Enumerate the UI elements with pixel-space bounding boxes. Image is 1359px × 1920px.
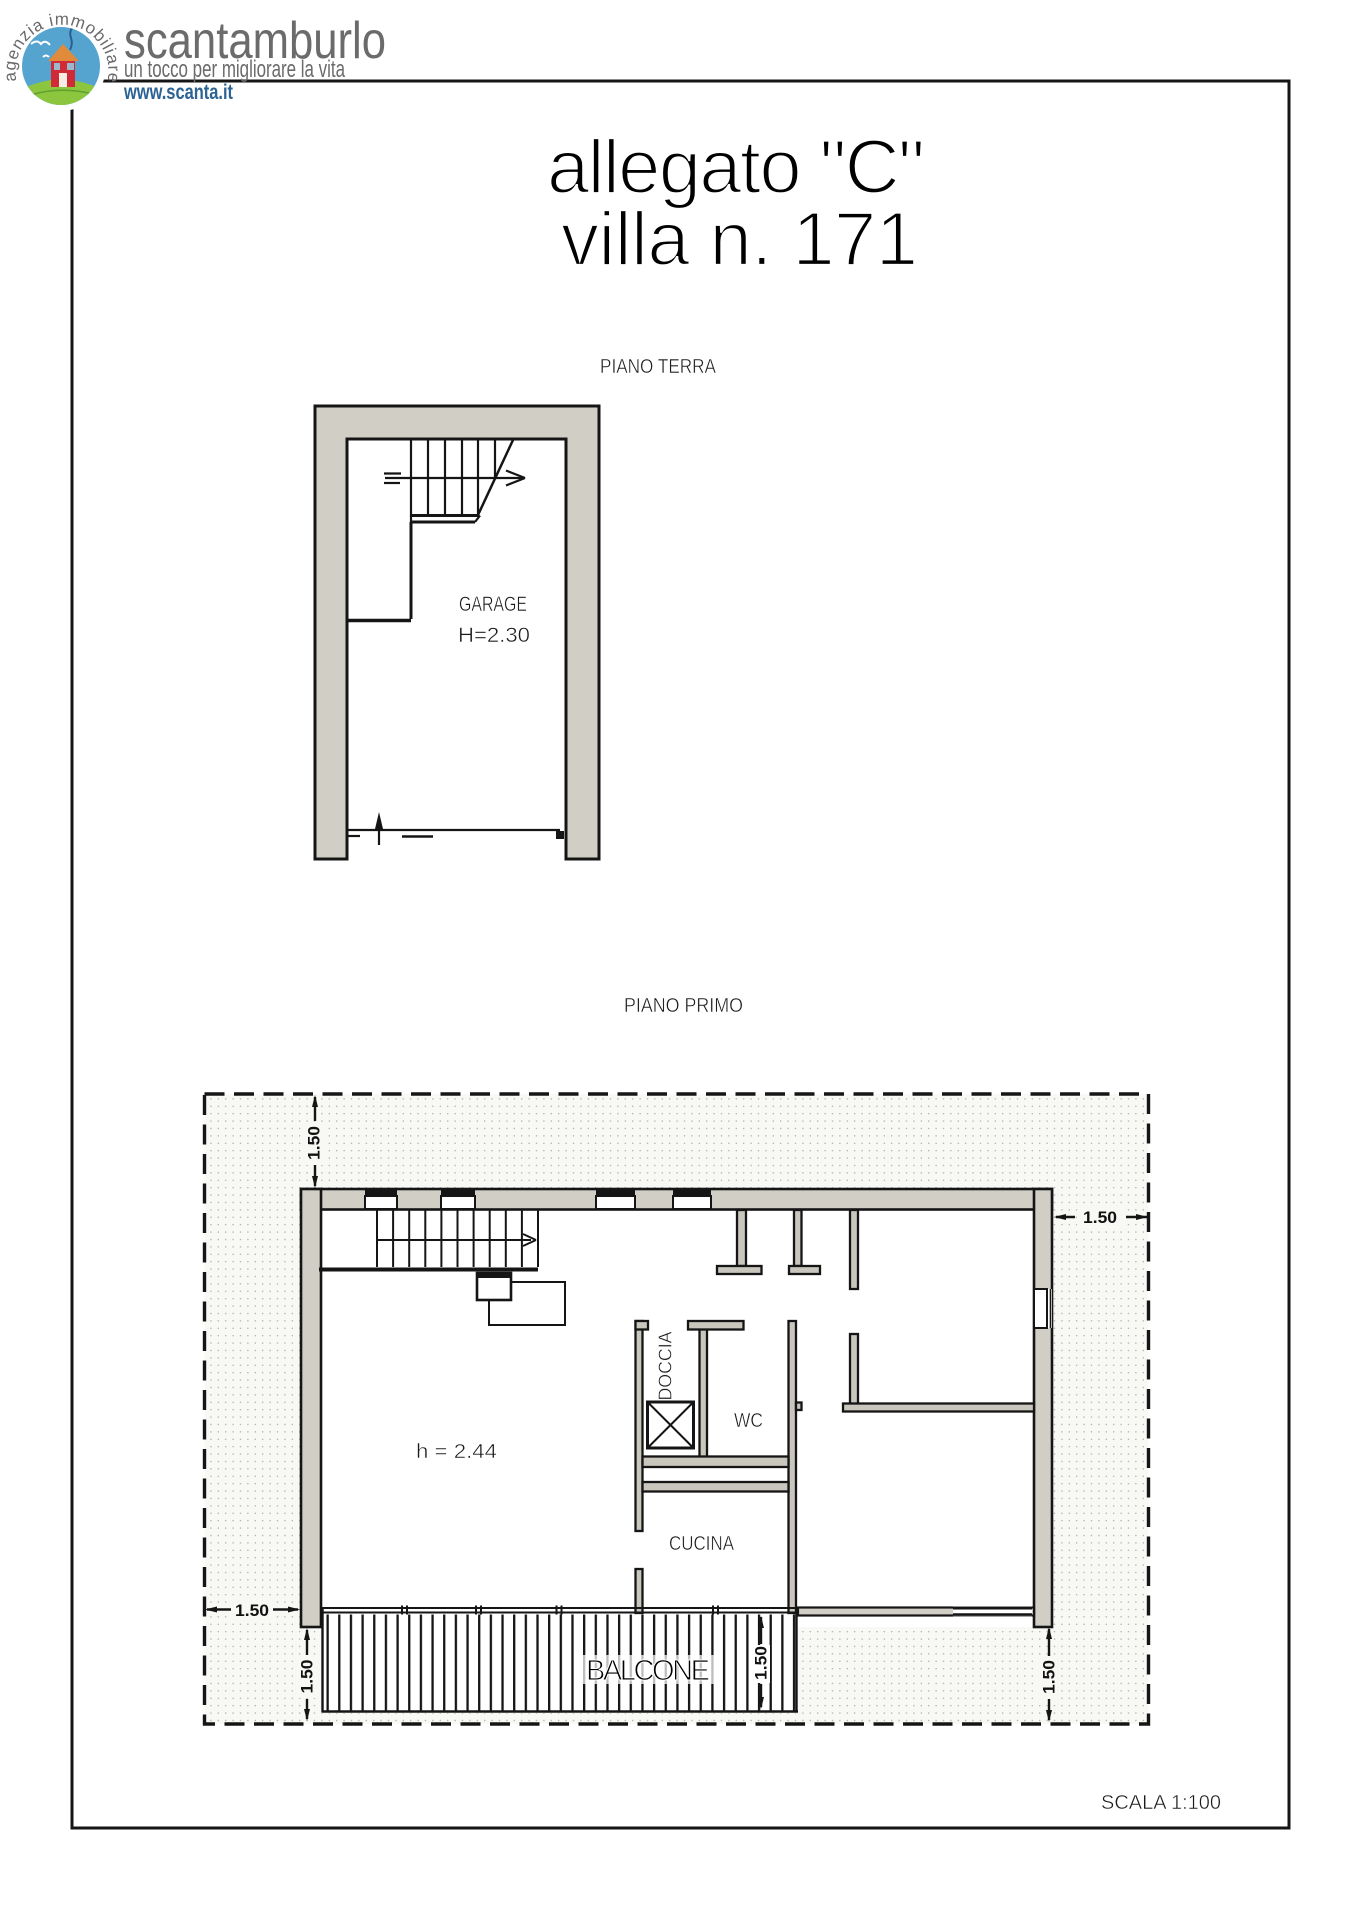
svg-text:1.50: 1.50 [752,1646,771,1680]
svg-text:PIANO PRIMO: PIANO PRIMO [624,995,743,1017]
svg-text:H=2.30: H=2.30 [458,624,530,647]
svg-text:1.50: 1.50 [1040,1660,1059,1694]
svg-text:WC: WC [734,1410,763,1432]
svg-text:BALCONE: BALCONE [586,1655,710,1687]
svg-text:h = 2.44: h = 2.44 [416,1441,497,1463]
svg-text:www.scanta.it: www.scanta.it [123,81,233,104]
svg-text:1.50: 1.50 [298,1660,317,1694]
svg-text:CUCINA: CUCINA [669,1533,735,1555]
svg-text:DOCCIA: DOCCIA [656,1332,676,1401]
svg-text:un tocco per migliorare la vit: un tocco per migliorare la vita [124,56,345,83]
svg-text:SCALA 1:100: SCALA 1:100 [1101,1792,1221,1814]
svg-text:PIANO TERRA: PIANO TERRA [600,356,717,378]
svg-text:villa n. 171: villa n. 171 [561,197,918,282]
svg-text:1.50: 1.50 [1083,1208,1117,1227]
svg-text:GARAGE: GARAGE [459,593,527,616]
svg-text:1.50: 1.50 [235,1601,269,1620]
svg-text:1.50: 1.50 [305,1126,324,1160]
